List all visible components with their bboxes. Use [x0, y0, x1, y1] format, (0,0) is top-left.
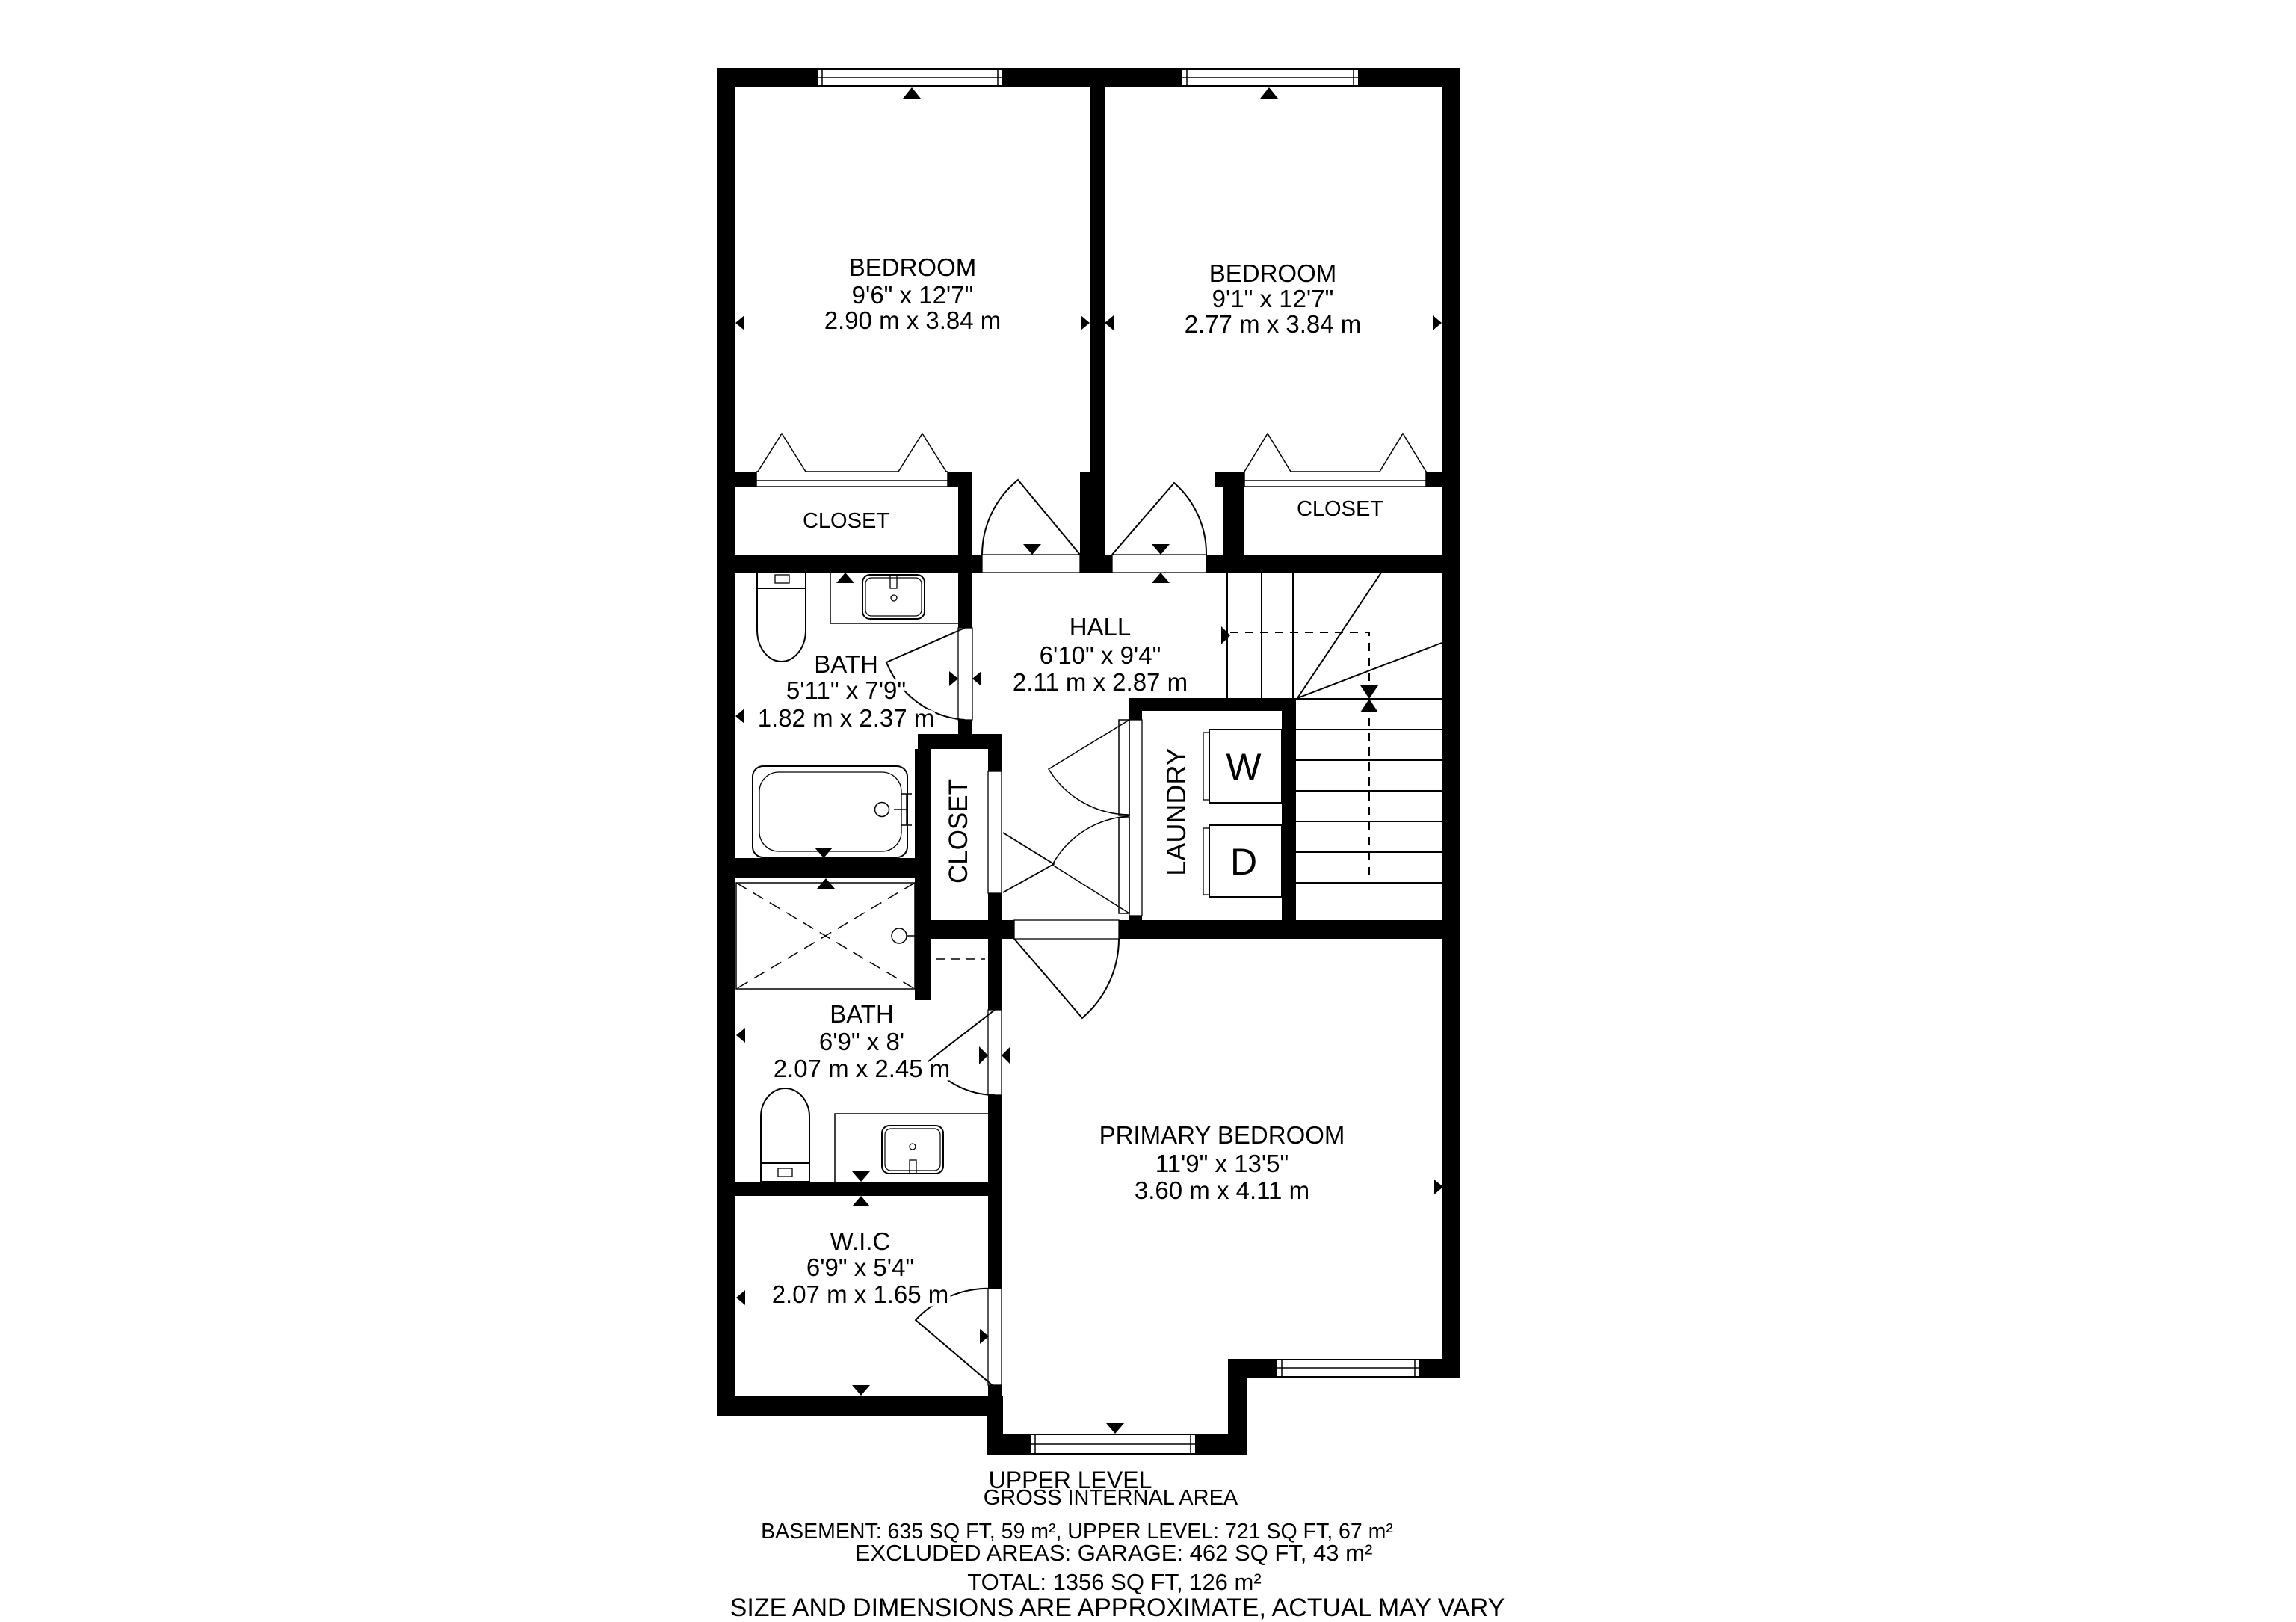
svg-text:5'11" x 7'9": 5'11" x 7'9"	[786, 676, 906, 704]
svg-text:BEDROOM: BEDROOM	[1209, 259, 1337, 287]
svg-text:2.07 m x 2.45 m: 2.07 m x 2.45 m	[774, 1055, 951, 1082]
svg-text:2.90 m x 3.84 m: 2.90 m x 3.84 m	[824, 306, 1002, 334]
svg-text:6'9" x 5'4": 6'9" x 5'4"	[806, 1253, 914, 1281]
svg-text:3.60 m x 4.11 m: 3.60 m x 4.11 m	[1135, 1177, 1309, 1204]
svg-text:2.11 m x 2.87 m: 2.11 m x 2.87 m	[1013, 668, 1188, 696]
svg-text:CLOSET: CLOSET	[803, 509, 889, 533]
svg-text:9'1" x 12'7": 9'1" x 12'7"	[1212, 285, 1334, 312]
svg-text:BEDROOM: BEDROOM	[849, 253, 977, 281]
svg-text:EXCLUDED AREAS: GARAGE: 462 SQ: EXCLUDED AREAS: GARAGE: 462 SQ FT, 43 m²	[855, 1540, 1373, 1566]
svg-text:BATH: BATH	[830, 1000, 894, 1028]
svg-text:1.82 m x 2.37 m: 1.82 m x 2.37 m	[758, 704, 935, 732]
svg-text:W: W	[1226, 746, 1262, 788]
svg-text:2.07 m x 1.65 m: 2.07 m x 1.65 m	[772, 1280, 949, 1308]
svg-text:W.I.C: W.I.C	[830, 1227, 891, 1255]
svg-text:2.77 m x 3.84 m: 2.77 m x 3.84 m	[1185, 310, 1362, 338]
svg-text:TOTAL: 1356 SQ FT, 126 m²: TOTAL: 1356 SQ FT, 126 m²	[967, 1569, 1261, 1595]
svg-text:9'6" x 12'7": 9'6" x 12'7"	[852, 281, 974, 309]
svg-text:6'10" x 9'4": 6'10" x 9'4"	[1040, 641, 1161, 669]
svg-text:GROSS INTERNAL AREA: GROSS INTERNAL AREA	[984, 1486, 1238, 1510]
svg-text:LAUNDRY: LAUNDRY	[1161, 747, 1191, 875]
svg-text:CLOSET: CLOSET	[944, 779, 973, 884]
svg-text:HALL: HALL	[1070, 613, 1132, 641]
svg-text:D: D	[1230, 841, 1257, 883]
svg-text:BATH: BATH	[814, 650, 878, 678]
svg-text:11'9" x 13'5": 11'9" x 13'5"	[1155, 1150, 1289, 1177]
svg-text:PRIMARY BEDROOM: PRIMARY BEDROOM	[1099, 1121, 1345, 1149]
svg-text:CLOSET: CLOSET	[1297, 497, 1383, 521]
svg-text:6'9" x 8': 6'9" x 8'	[819, 1028, 904, 1055]
svg-text:SIZE AND DIMENSIONS ARE APPROX: SIZE AND DIMENSIONS ARE APPROXIMATE, ACT…	[730, 1594, 1505, 1622]
